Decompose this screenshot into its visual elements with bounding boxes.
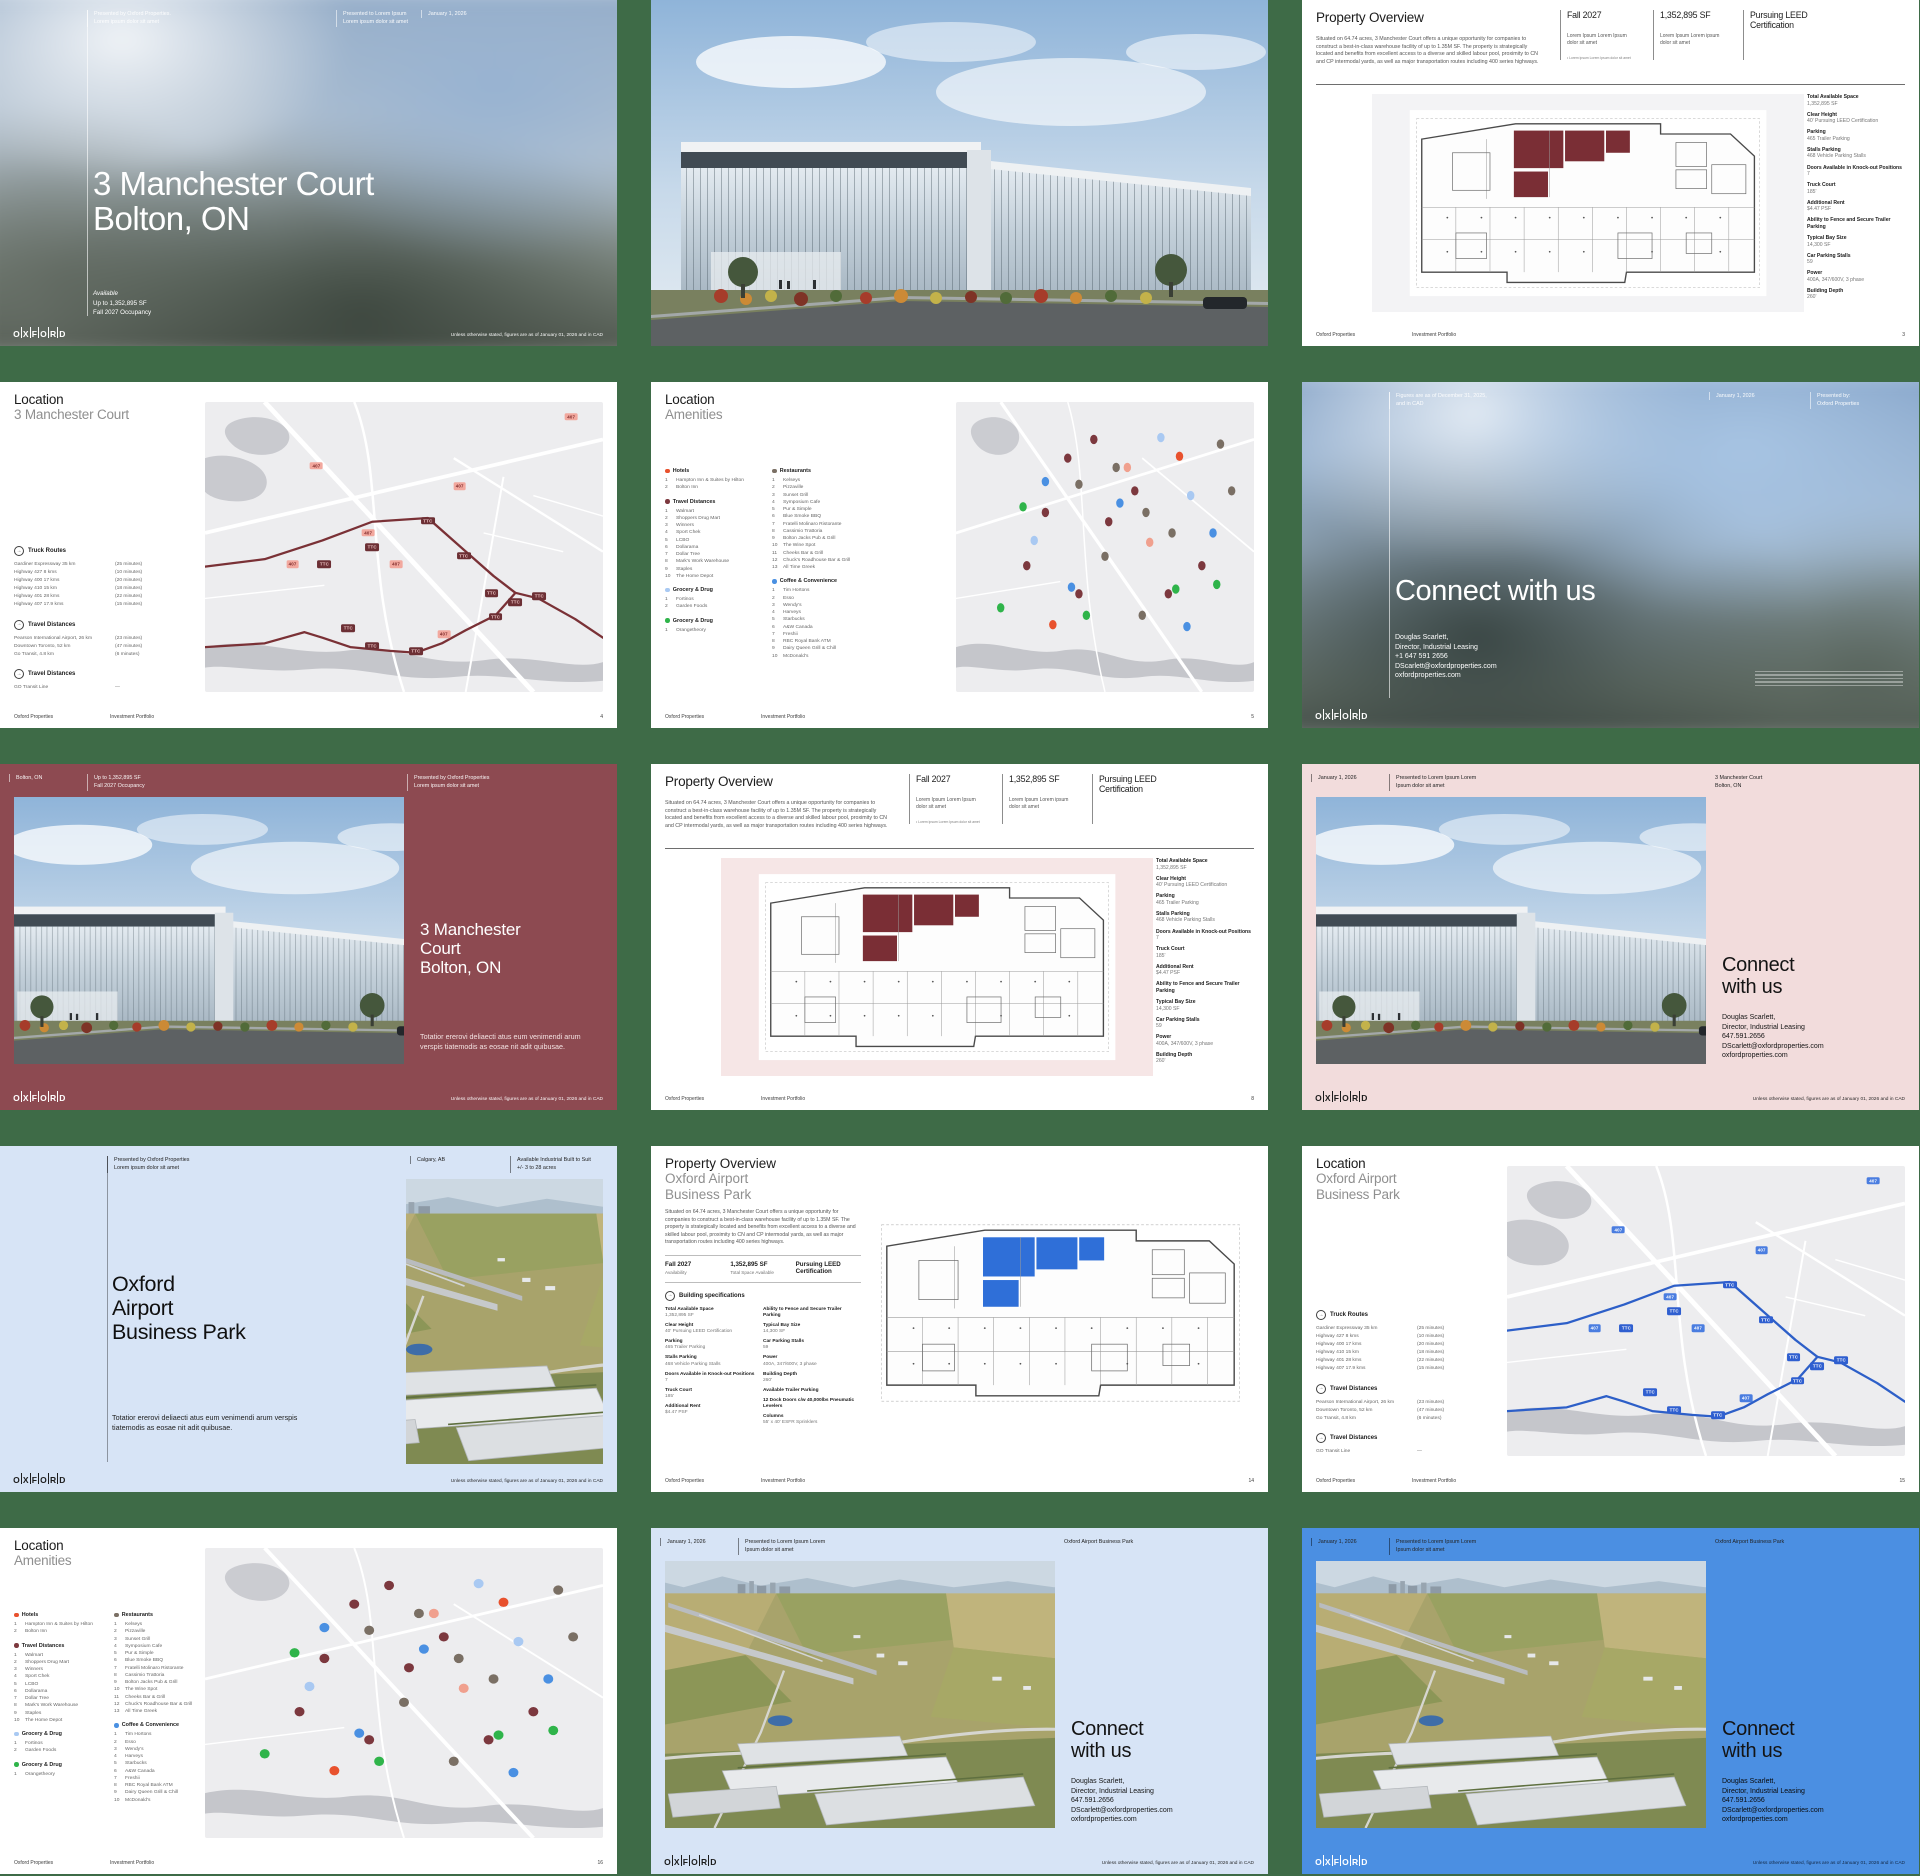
slide-footer: Oxford PropertiesInvestment Portfolio5 <box>665 714 1254 720</box>
amenity-item: 5Pur & Simple <box>772 506 884 513</box>
spec-item: Clear Height40' Pursuing LEED Certificat… <box>1807 112 1905 125</box>
amenities-legend: Hotels 1Hampton Inn & Suites by Hilton2B… <box>14 1612 218 1811</box>
spec-item: Building Depth260' <box>1807 288 1905 301</box>
page-number: 14 <box>1248 1478 1254 1484</box>
highway-badge: 407 <box>1755 1246 1768 1254</box>
contact-name: Douglas Scarlett, <box>1395 633 1497 643</box>
date: January 1, 2026 <box>667 1538 706 1546</box>
category-dot-icon <box>665 499 670 504</box>
spec-item: Building Depth260' <box>1156 1052 1254 1065</box>
page-title: Property Overview <box>1316 10 1424 25</box>
property-label: Oxford Airport Business Park <box>1715 1538 1784 1546</box>
disclaimer: Unless otherwise stated, figures are as … <box>451 333 603 338</box>
spec-item: Car Parking Stalls59 <box>1156 1017 1254 1030</box>
spec-item: Doors Available in Knock-out Positions7 <box>665 1372 757 1384</box>
amenity-item: 7Freshii <box>772 631 884 638</box>
amenity-item: 8Cassimio Trattoria <box>772 528 884 535</box>
page-number: 5 <box>1251 714 1254 720</box>
category-dot-icon <box>665 469 670 474</box>
contact-website[interactable]: oxfordproperties.com <box>1722 1815 1824 1825</box>
category-dot-icon <box>772 469 777 474</box>
amenity-item: 1Tim Hortons <box>114 1731 210 1738</box>
transit-badge: TTC <box>1667 1307 1681 1315</box>
spec-item: Stalls Parking468 Vehicle Parking Stalls <box>665 1355 757 1367</box>
location-label: Bolton, ON <box>16 774 42 782</box>
slide-footer: Oxford PropertiesInvestment Portfolio4 <box>14 714 603 720</box>
amenity-category: Travel Distances 1Walmart2Shoppers Drug … <box>665 499 764 581</box>
connect-heading: Connectwith us <box>1722 1718 1794 1762</box>
property-description: Totatior ererovi deliaecti atus eum veni… <box>420 1032 600 1052</box>
contact-email[interactable]: DScarlett@oxfordproperties.com <box>1071 1806 1173 1816</box>
page-number: 16 <box>597 1860 603 1866</box>
amenity-item: 10The Wine Spot <box>772 542 884 549</box>
amenity-item: 12Chuck's Roadhouse Bar & Grill <box>114 1701 210 1708</box>
amenity-item: 3Wendy's <box>772 602 884 609</box>
contact-role: Director, Industrial Leasing <box>1722 1787 1824 1797</box>
contact-phone[interactable]: 647.591.2656 <box>1071 1796 1173 1806</box>
spec-item: Parking465 Trailer Parking <box>665 1339 757 1351</box>
route-row: Highway 427 8 kms(10 minutes) <box>14 569 200 577</box>
amenity-item: 5Pur & Simple <box>114 1650 210 1657</box>
spec-item: Doors Available in Knock-out Positions7 <box>1156 929 1254 942</box>
oxford-logo: OXFORD <box>1314 709 1369 721</box>
contact-name: Douglas Scarlett, <box>1722 1013 1824 1023</box>
contact-role: Director, Industrial Leasing <box>1395 643 1497 653</box>
route-row: Go Transit, 4.8 km(6 minutes) <box>1316 1415 1502 1423</box>
slide-5-amenities[interactable]: LocationAmenities Hotels 1Hampton Inn & … <box>651 382 1268 728</box>
category-dot-icon <box>114 1613 119 1618</box>
amenity-category: Grocery & Drug 1Orangetheory <box>665 618 764 634</box>
amenity-item: 13All Time Greek <box>114 1708 210 1715</box>
building-rendering <box>14 797 404 1064</box>
travel-distances-section: Travel Distances Pearson International A… <box>1316 1384 1502 1423</box>
property-label: 3 Manchester Court <box>1715 774 1762 782</box>
amenity-item: 2Bolton Inn <box>665 484 764 491</box>
transit-badge: TTC <box>1643 1388 1657 1396</box>
property-description: Totatior ererovi deliaecti atus eum veni… <box>112 1413 317 1433</box>
amenity-item: 6Blue Smoke BBQ <box>772 513 884 520</box>
presented-to: Presented to Lorem Ipsum <box>343 10 408 18</box>
slide-footer: Oxford PropertiesInvestment Portfolio14 <box>665 1478 1254 1484</box>
figures-note: Figures are as of December 31, 2025, <box>1396 392 1487 400</box>
contact-phone[interactable]: +1 647 591 2656 <box>1395 652 1497 662</box>
amenity-category: Grocery & Drug 1Fortinos2Garden Foods <box>665 587 764 611</box>
page-number: 4 <box>600 714 603 720</box>
arrow-icon <box>1316 1310 1326 1320</box>
highway-badge: 407 <box>453 482 466 490</box>
amenity-item: 3Winners <box>665 522 764 529</box>
spec-item: Doors Available in Knock-out Positions7 <box>1807 165 1905 178</box>
location-map: 407 407 407 407 407 407 407 TTC TTC TTC … <box>205 402 603 692</box>
slide-footer: Oxford PropertiesInvestment Portfolio3 <box>1316 332 1905 338</box>
spec-item: Ability to Fence and Secure Trailer Park… <box>1807 217 1905 230</box>
contact-info: Douglas Scarlett, Director, Industrial L… <box>1395 633 1497 681</box>
transit-badge: TTC <box>421 517 435 525</box>
category-dot-icon <box>772 579 777 584</box>
location-map: 407 407 407 407 407 407 407 TTC TTC TTC … <box>1507 1166 1905 1456</box>
amenity-item: 9Dairy Queen Grill & Chill <box>772 645 884 652</box>
amenity-category: Hotels 1Hampton Inn & Suites by Hilton2B… <box>14 1612 106 1636</box>
connect-heading: Connectwith us <box>1071 1718 1143 1762</box>
spec-item: Columns55' x 40' ESFR Sprinklers <box>763 1414 855 1426</box>
presented-by: Presented by: <box>1817 392 1859 400</box>
travel-distances-section: Travel Distances Pearson International A… <box>14 620 200 659</box>
transit-badge: TTC <box>365 642 379 650</box>
highway-badge: 407 <box>1588 1325 1601 1333</box>
amenity-item: 9Bolton Jacks Pub & Grill <box>772 535 884 542</box>
amenity-item: 7Fratelli Molinaro Ristorante <box>114 1665 210 1672</box>
divider-line <box>1316 84 1905 85</box>
amenity-item: 6Dollarama <box>665 544 764 551</box>
amenity-item: 1Kelseys <box>114 1621 210 1628</box>
amenity-item: 2Garden Foods <box>14 1747 106 1754</box>
spec-item: Clear Height40' Pursuing LEED Certificat… <box>1156 876 1254 889</box>
aerial-photo <box>665 1561 1055 1828</box>
property-title: 3 ManchesterCourtBolton, ON <box>420 920 602 978</box>
highway-badge: 407 <box>1612 1226 1625 1234</box>
transit-badge: TTC <box>317 561 331 569</box>
transit-badge: TTC <box>409 648 423 656</box>
amenity-item: 13All Time Greek <box>772 564 884 571</box>
transit-badge: TTC <box>457 552 471 560</box>
page-title: LocationAmenities <box>14 1538 71 1569</box>
slide-2-building-photo[interactable] <box>651 0 1268 346</box>
oxford-logo: OXFORD <box>12 1091 67 1103</box>
floor-plan <box>869 1166 1252 1460</box>
aerial-photo <box>1316 1561 1706 1828</box>
amenity-item: 8Mark's Work Warehouse <box>14 1702 106 1709</box>
amenity-item: 8Mark's Work Warehouse <box>665 558 764 565</box>
amenity-item: 5LCBO <box>665 537 764 544</box>
amenity-item: 10The Wine Spot <box>114 1686 210 1693</box>
availability-block: Available Up to 1,352,895 SF Fall 2027 O… <box>93 289 151 318</box>
transit-section: Travel Distances GO Transit Line— <box>1316 1433 1502 1456</box>
amenity-item: 2Esso <box>772 595 884 602</box>
amenity-item: 2Shoppers Drug Mart <box>14 1659 106 1666</box>
spec-item: Available Trailer Parking <box>763 1388 855 1394</box>
divider-line <box>665 848 1254 849</box>
route-row: Highway 400 17 kms(20 minutes) <box>1316 1341 1502 1349</box>
contact-email[interactable]: DScarlett@oxfordproperties.com <box>1722 1806 1824 1816</box>
spec-item: Truck Court185' <box>1156 946 1254 959</box>
spec-item: Car Parking Stalls59 <box>763 1339 855 1351</box>
contact-info: Douglas Scarlett, Director, Industrial L… <box>1071 1777 1173 1825</box>
spec-item: Parking465 Trailer Parking <box>1156 893 1254 906</box>
page-title: Property Overview <box>665 774 773 789</box>
amenities-legend: Hotels 1Hampton Inn & Suites by Hilton2B… <box>665 468 892 667</box>
route-row: Pearson International Airport, 26 km(23 … <box>14 635 200 643</box>
amenity-item: 9Staples <box>14 1710 106 1717</box>
highway-badge: 407 <box>565 413 578 421</box>
transit-badge: TTC <box>1834 1357 1848 1365</box>
disclaimer: Unless otherwise stated, figures are as … <box>1753 1861 1905 1866</box>
route-row: Gardiner Expressway 35 km(25 minutes) <box>14 561 200 569</box>
building-specs: Total Available Space1,352,895 SFClear H… <box>1156 858 1254 1070</box>
amenity-item: 3Sunset Grill <box>114 1636 210 1643</box>
contact-website[interactable]: oxfordproperties.com <box>1395 671 1497 681</box>
arrow-icon <box>14 620 24 630</box>
amenity-item: 8RBC Royal Bank ATM <box>772 638 884 645</box>
building-rendering <box>651 0 1268 346</box>
transit-section: Travel Distances GO Transit Line— <box>14 669 200 692</box>
transit-badge: TTC <box>485 590 499 598</box>
spec-item: Additional Rent$4.47 PSF <box>1156 964 1254 977</box>
building-specs: Total Available Space1,352,895 SFClear H… <box>665 1307 861 1431</box>
amenity-item: 10The Home Depot <box>665 573 764 580</box>
amenity-item: 4Symposium Cafe <box>114 1643 210 1650</box>
page-number: 8 <box>1251 1096 1254 1102</box>
amenity-item: 1Orangetheory <box>665 627 764 634</box>
overview-body: Situated on 64.74 acres, 3 Manchester Co… <box>665 1209 861 1247</box>
cover-title: 3 Manchester CourtBolton, ON <box>93 166 374 237</box>
amenity-category: Restaurants 1Kelseys2Pizzaville3Sunset G… <box>772 468 884 571</box>
slide-1-cover[interactable]: Presented by Oxford Properties.Lorem ips… <box>0 0 617 346</box>
page-title: LocationOxford AirportBusiness Park <box>1316 1156 1400 1202</box>
highway-badge: 407 <box>1692 1325 1705 1333</box>
slide-3-property-overview[interactable]: Property Overview Situated on 64.74 acre… <box>1302 0 1919 346</box>
amenity-item: 3Winners <box>14 1666 106 1673</box>
date: January 1, 2026 <box>1716 392 1755 400</box>
slide-12-airport-location[interactable]: LocationOxford AirportBusiness Park Truc… <box>1302 1146 1919 1492</box>
amenity-item: 1Hampton Inn & Suites by Hilton <box>665 477 764 484</box>
spec-item: Power400A, 347/600V, 3 phase <box>1156 1034 1254 1047</box>
transit-badge: TTC <box>1791 1377 1805 1385</box>
contact-name: Douglas Scarlett, <box>1722 1777 1824 1787</box>
slide-7-red-cover[interactable]: Bolton, ON Up to 1,352,895 SFFall 2027 O… <box>0 764 617 1110</box>
amenity-category: Travel Distances 1Walmart2Shoppers Drug … <box>14 1643 106 1725</box>
slide-13-amenities[interactable]: LocationAmenities Hotels 1Hampton Inn & … <box>0 1528 617 1874</box>
amenity-item: 2Esso <box>114 1739 210 1746</box>
slide-15-connect-blue[interactable]: January 1, 2026 Presented to Lorem Ipsum… <box>1302 1528 1919 1874</box>
amenity-category: Coffee & Convenience 1Tim Hortons2Esso3W… <box>772 578 884 660</box>
route-row: GO Transit Line— <box>1316 1448 1502 1456</box>
overview-panel: Property OverviewOxford AirportBusiness … <box>665 1156 861 1431</box>
presented-to: Presented to Lorem Ipsum Lorem <box>745 1538 825 1546</box>
divider-line <box>87 10 88 316</box>
specs-heading: Building specifications <box>665 1291 861 1301</box>
amenity-item: 1Walmart <box>14 1652 106 1659</box>
amenity-item: 11Cheeks Bar & Grill <box>772 550 884 557</box>
truck-routes-section: Truck Routes Gardiner Expressway 35 km(2… <box>14 546 200 609</box>
spec-item: Stalls Parking468 Vehicle Parking Stalls <box>1156 911 1254 924</box>
location-details: Truck Routes Gardiner Expressway 35 km(2… <box>14 546 200 703</box>
spec-item: 12 Dock Doors c/w 40,000lbs Pneumatic Le… <box>763 1398 855 1410</box>
building-specs: Total Available Space1,352,895 SFClear H… <box>1807 94 1905 306</box>
category-dot-icon <box>665 618 670 623</box>
amenity-category: Grocery & Drug 1Fortinos2Garden Foods <box>14 1731 106 1755</box>
spec-item: Total Available Space1,352,895 SF <box>1807 94 1905 107</box>
route-row: Highway 410 15 km(18 minutes) <box>1316 1349 1502 1357</box>
stat-value: Pursuing LEED Certification <box>1750 10 1822 30</box>
stat-value: 1,352,895 SF <box>1660 10 1732 20</box>
transit-badge: TTC <box>532 593 546 601</box>
route-row: Highway 401 28 kms(22 minutes) <box>1316 1357 1502 1365</box>
arrow-icon <box>1316 1433 1326 1443</box>
highway-badge: 407 <box>1664 1293 1677 1301</box>
contact-info: Douglas Scarlett, Director, Industrial L… <box>1722 1013 1824 1061</box>
amenity-category: Grocery & Drug 1Orangetheory <box>14 1762 106 1778</box>
transit-badge: TTC <box>1619 1325 1633 1333</box>
route-row: Highway 407 17.9 kms(15 minutes) <box>14 601 200 609</box>
amenity-item: 4Sport Chek <box>14 1673 106 1680</box>
contact-phone[interactable]: 647.591.2656 <box>1722 1796 1824 1806</box>
presented-to: Presented to Lorem Ipsum Lorem <box>1396 1538 1476 1546</box>
contact-name: Douglas Scarlett, <box>1071 1777 1173 1787</box>
page-title: Location3 Manchester Court <box>14 392 129 423</box>
transit-badge: TTC <box>1759 1316 1773 1324</box>
presented-by: Presented by Oxford Properties. <box>94 10 171 18</box>
slide-11-airport-overview[interactable]: Property OverviewOxford AirportBusiness … <box>651 1146 1268 1492</box>
arrow-icon <box>14 546 24 556</box>
spec-item: Additional Rent$4.47 PSF <box>1807 200 1905 213</box>
amenity-item: 6A&W Canada <box>114 1768 210 1775</box>
spec-item: Truck Court185' <box>665 1388 757 1400</box>
amenity-item: 1Orangetheory <box>14 1771 106 1778</box>
amenity-category: Coffee & Convenience 1Tim Hortons2Esso3W… <box>114 1722 210 1804</box>
category-dot-icon <box>114 1723 119 1728</box>
spec-item: Typical Bay Size14,300 SF <box>763 1323 855 1335</box>
amenity-item: 2Pizzaville <box>114 1628 210 1635</box>
category-dot-icon <box>14 1732 19 1737</box>
transit-badge: TTC <box>508 598 522 606</box>
aerial-photo <box>406 1179 603 1464</box>
highway-badge: 407 <box>390 561 403 569</box>
slide-8-property-overview[interactable]: Property Overview Situated on 64.74 acre… <box>651 764 1268 1110</box>
amenity-item: 4Harveys <box>772 609 884 616</box>
page-number: 15 <box>1899 1478 1905 1484</box>
transit-badge: TTC <box>1711 1412 1725 1420</box>
stat-value: Fall 2027 <box>1567 10 1639 20</box>
route-row: Go Transit, 4.8 km(6 minutes) <box>14 651 200 659</box>
contact-info: Douglas Scarlett, Director, Industrial L… <box>1722 1777 1824 1825</box>
oxford-logo: OXFORD <box>663 1855 718 1867</box>
arrow-icon <box>1316 1384 1326 1394</box>
route-row: Highway 410 15 km(18 minutes) <box>14 585 200 593</box>
contact-website[interactable]: oxfordproperties.com <box>1071 1815 1173 1825</box>
property-title: OxfordAirportBusiness Park <box>112 1272 246 1344</box>
slide-10-airport-cover[interactable]: Presented by Oxford PropertiesLorem ipsu… <box>0 1146 617 1492</box>
amenity-item: 7Dollar Tree <box>665 551 764 558</box>
slide-footer: Oxford PropertiesInvestment Portfolio15 <box>1316 1478 1905 1484</box>
route-row: Pearson International Airport, 26 km(23 … <box>1316 1399 1502 1407</box>
highway-badge: 407 <box>310 462 323 470</box>
amenity-item: 6Dollarama <box>14 1688 106 1695</box>
arrow-icon <box>665 1291 675 1301</box>
overview-body: Situated on 64.74 acres, 3 Manchester Co… <box>665 800 893 831</box>
divider-line <box>1389 392 1390 698</box>
spec-item: Total Available Space1,352,895 SF <box>1156 858 1254 871</box>
spec-item: Parking465 Trailer Parking <box>1807 129 1905 142</box>
highway-badge: 407 <box>286 561 299 569</box>
city-label: Calgary, AB <box>417 1156 445 1164</box>
amenity-item: 5Starbucks <box>772 616 884 623</box>
connect-heading: Connectwith us <box>1722 954 1794 998</box>
overview-stats: Fall 2027Lorem Ipsum Lorem Ipsum dolor s… <box>1560 10 1905 60</box>
amenity-item: 2Shoppers Drug Mart <box>665 515 764 522</box>
spec-item: Building Depth260' <box>763 1372 855 1384</box>
route-row: Highway 400 17 kms(20 minutes) <box>14 577 200 585</box>
amenity-item: 1Hampton Inn & Suites by Hilton <box>14 1621 106 1628</box>
oxford-logo: OXFORD <box>12 327 67 339</box>
transit-badge: TTC <box>1723 1281 1737 1289</box>
slide-4-location[interactable]: Location3 Manchester Court Truck Routes … <box>0 382 617 728</box>
oxford-logo: OXFORD <box>12 1473 67 1485</box>
contact-phone[interactable]: 647.591.2656 <box>1722 1032 1824 1042</box>
disclaimer: Unless otherwise stated, figures are as … <box>1753 1097 1905 1102</box>
amenity-item: 1Tim Hortons <box>772 587 884 594</box>
slide-9-connect-pink[interactable]: January 1, 2026 Presented to Lorem Ipsum… <box>1302 764 1919 1110</box>
amenity-item: 7Fratelli Molinaro Ristorante <box>772 521 884 528</box>
spec-item: Typical Bay Size14,300 SF <box>1807 235 1905 248</box>
page-number: 3 <box>1902 332 1905 338</box>
amenity-category: Restaurants 1Kelseys2Pizzaville3Sunset G… <box>114 1612 210 1715</box>
spec-item: Typical Bay Size14,300 SF <box>1156 999 1254 1012</box>
property-label: Oxford Airport Business Park <box>1064 1538 1133 1546</box>
amenity-item: 3Wendy's <box>114 1746 210 1753</box>
page-title: LocationAmenities <box>665 392 722 423</box>
amenity-item: 8RBC Royal Bank ATM <box>114 1782 210 1789</box>
arrow-icon <box>14 669 24 679</box>
oxford-logo: OXFORD <box>1314 1091 1369 1103</box>
amenity-item: 4Symposium Cafe <box>772 499 884 506</box>
floor-plan <box>1372 94 1804 312</box>
availability: Available Industrial Built to Suit <box>517 1156 591 1164</box>
slide-grid: Presented by Oxford Properties.Lorem ips… <box>0 0 1920 1874</box>
amenity-item: 7Dollar Tree <box>14 1695 106 1702</box>
slide-6-connect[interactable]: Figures are as of December 31, 2025,and … <box>1302 382 1919 728</box>
amenity-category: Hotels 1Hampton Inn & Suites by Hilton2B… <box>665 468 764 492</box>
amenity-item: 10The Home Depot <box>14 1717 106 1724</box>
amenity-item: 6Blue Smoke BBQ <box>114 1657 210 1664</box>
contact-role: Director, Industrial Leasing <box>1722 1023 1824 1033</box>
slide-14-connect-lightblue[interactable]: January 1, 2026 Presented to Lorem Ipsum… <box>651 1528 1268 1874</box>
truck-routes-section: Truck Routes Gardiner Expressway 35 km(2… <box>1316 1310 1502 1373</box>
route-row: Gardiner Expressway 35 km(25 minutes) <box>1316 1325 1502 1333</box>
amenity-item: 1Kelseys <box>772 477 884 484</box>
legal-disclaimer <box>1755 671 1903 688</box>
amenity-item: 1Fortinos <box>665 596 764 603</box>
amenity-item: 12Chuck's Roadhouse Bar & Grill <box>772 557 884 564</box>
amenity-item: 9Bolton Jacks Pub & Grill <box>114 1679 210 1686</box>
amenity-item: 5LCBO <box>14 1681 106 1688</box>
route-row: Highway 407 17.9 kms(15 minutes) <box>1316 1365 1502 1373</box>
contact-email[interactable]: DScarlett@oxfordproperties.com <box>1722 1042 1824 1052</box>
transit-badge: TTC <box>1667 1406 1681 1414</box>
amenities-map <box>956 402 1254 692</box>
transit-badge: TTC <box>489 613 503 621</box>
amenity-item: 10McDonald's <box>772 653 884 660</box>
contact-website[interactable]: oxfordproperties.com <box>1722 1051 1824 1061</box>
spec-item: Total Available Space1,352,895 SF <box>665 1307 757 1319</box>
transit-badge: TTC <box>1810 1362 1824 1370</box>
spec-item: Clear Height40' Pursuing LEED Certificat… <box>665 1323 757 1335</box>
floor-plan <box>721 858 1153 1076</box>
amenity-item: 11Cheeks Bar & Grill <box>114 1694 210 1701</box>
amenity-item: 3Sunset Grill <box>772 492 884 499</box>
overview-stats: Fall 2027Availability 1,352,895 SFTotal … <box>665 1255 861 1283</box>
contact-email[interactable]: DScarlett@oxfordproperties.com <box>1395 662 1497 672</box>
amenity-item: 4Harveys <box>114 1753 210 1760</box>
amenity-item: 2Garden Foods <box>665 603 764 610</box>
date: January 1, 2026 <box>1318 1538 1357 1546</box>
presented-by: Presented by Oxford Properties <box>414 774 490 782</box>
amenity-item: 7Freshii <box>114 1775 210 1782</box>
category-dot-icon <box>14 1762 19 1767</box>
building-rendering <box>1316 797 1706 1064</box>
route-row: GO Transit Line— <box>14 684 200 692</box>
highway-badge: 407 <box>437 630 450 638</box>
oxford-logo: OXFORD <box>1314 1855 1369 1867</box>
